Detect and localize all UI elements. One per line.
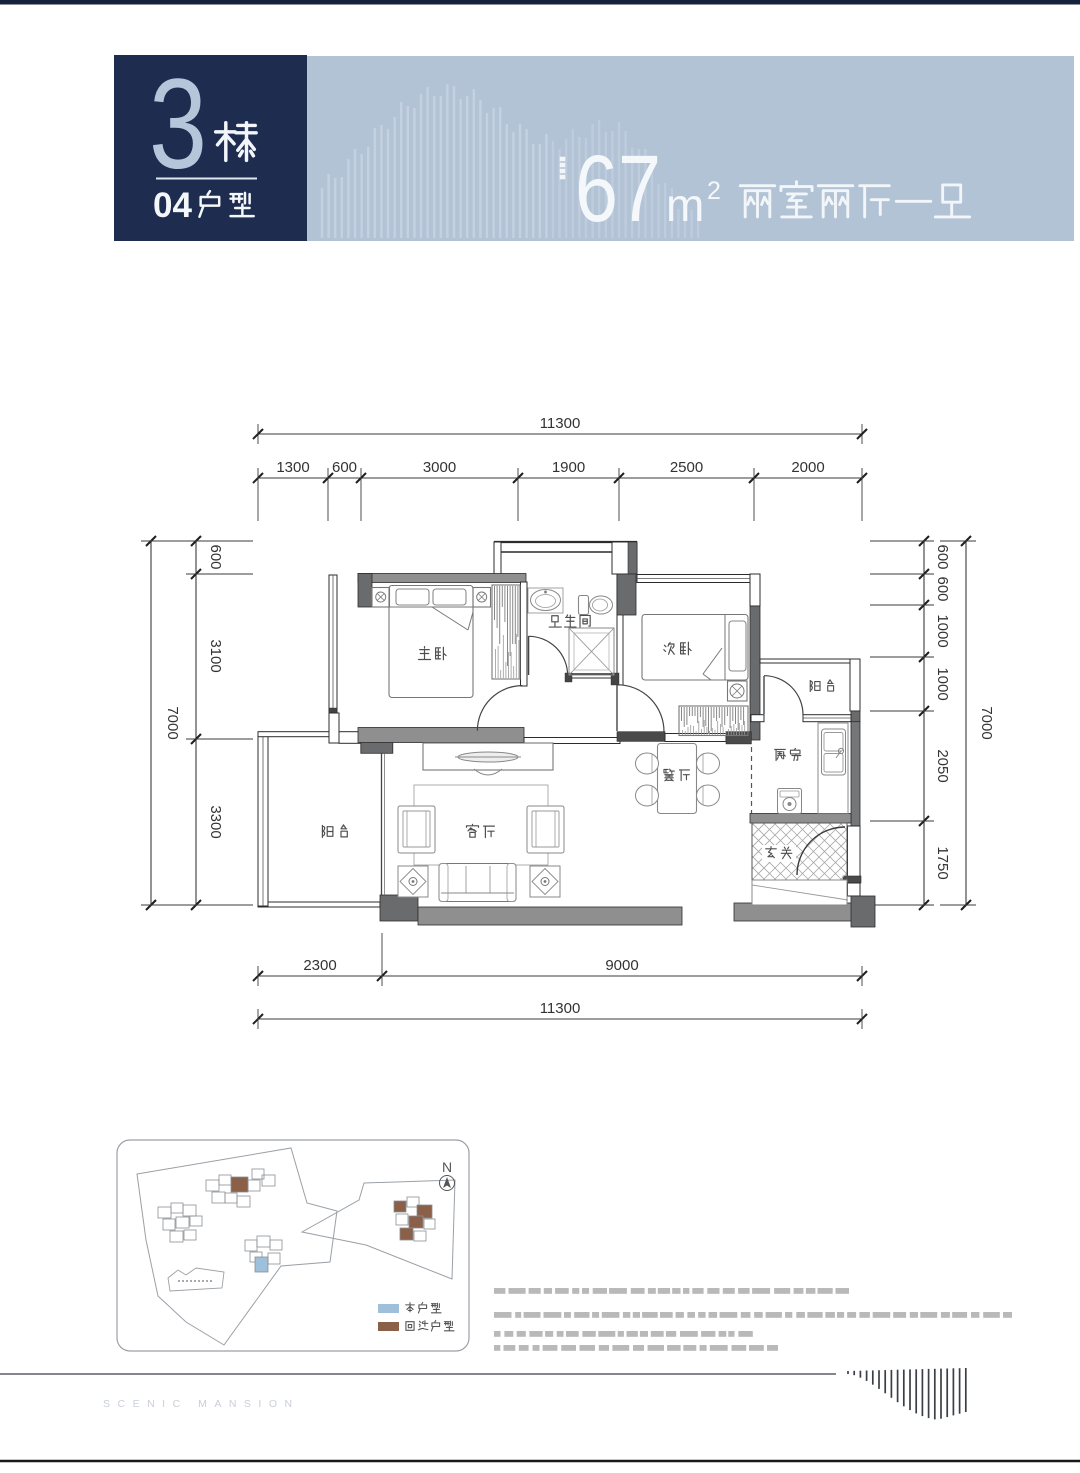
svg-text:600: 600 (934, 544, 951, 569)
svg-text:2500: 2500 (670, 459, 703, 476)
svg-text:m: m (666, 179, 704, 231)
svg-text:3100: 3100 (207, 639, 224, 672)
svg-text:04: 04 (153, 186, 192, 225)
svg-text:2050: 2050 (934, 749, 951, 782)
svg-text:7000: 7000 (978, 706, 995, 739)
svg-text:3: 3 (149, 53, 207, 196)
svg-text:2000: 2000 (791, 459, 824, 476)
svg-text:11300: 11300 (540, 1000, 581, 1017)
svg-text:3000: 3000 (423, 459, 456, 476)
svg-text:2300: 2300 (303, 957, 336, 974)
svg-text:1300: 1300 (276, 459, 309, 476)
svg-text:67: 67 (575, 136, 661, 242)
svg-text:7000: 7000 (164, 706, 181, 739)
svg-text:3300: 3300 (207, 805, 224, 838)
svg-text:N: N (442, 1159, 452, 1175)
svg-text:600: 600 (332, 459, 357, 476)
svg-text:600: 600 (934, 576, 951, 601)
svg-text:SCENIC MANSION: SCENIC MANSION (103, 1398, 300, 1410)
svg-text:600: 600 (207, 544, 224, 569)
svg-text:1750: 1750 (934, 846, 951, 879)
svg-text:2: 2 (707, 177, 721, 205)
svg-text:1000: 1000 (934, 667, 951, 700)
svg-text:1900: 1900 (552, 459, 585, 476)
svg-text:11300: 11300 (540, 415, 581, 432)
svg-text:9000: 9000 (605, 957, 638, 974)
svg-text:1000: 1000 (934, 614, 951, 647)
